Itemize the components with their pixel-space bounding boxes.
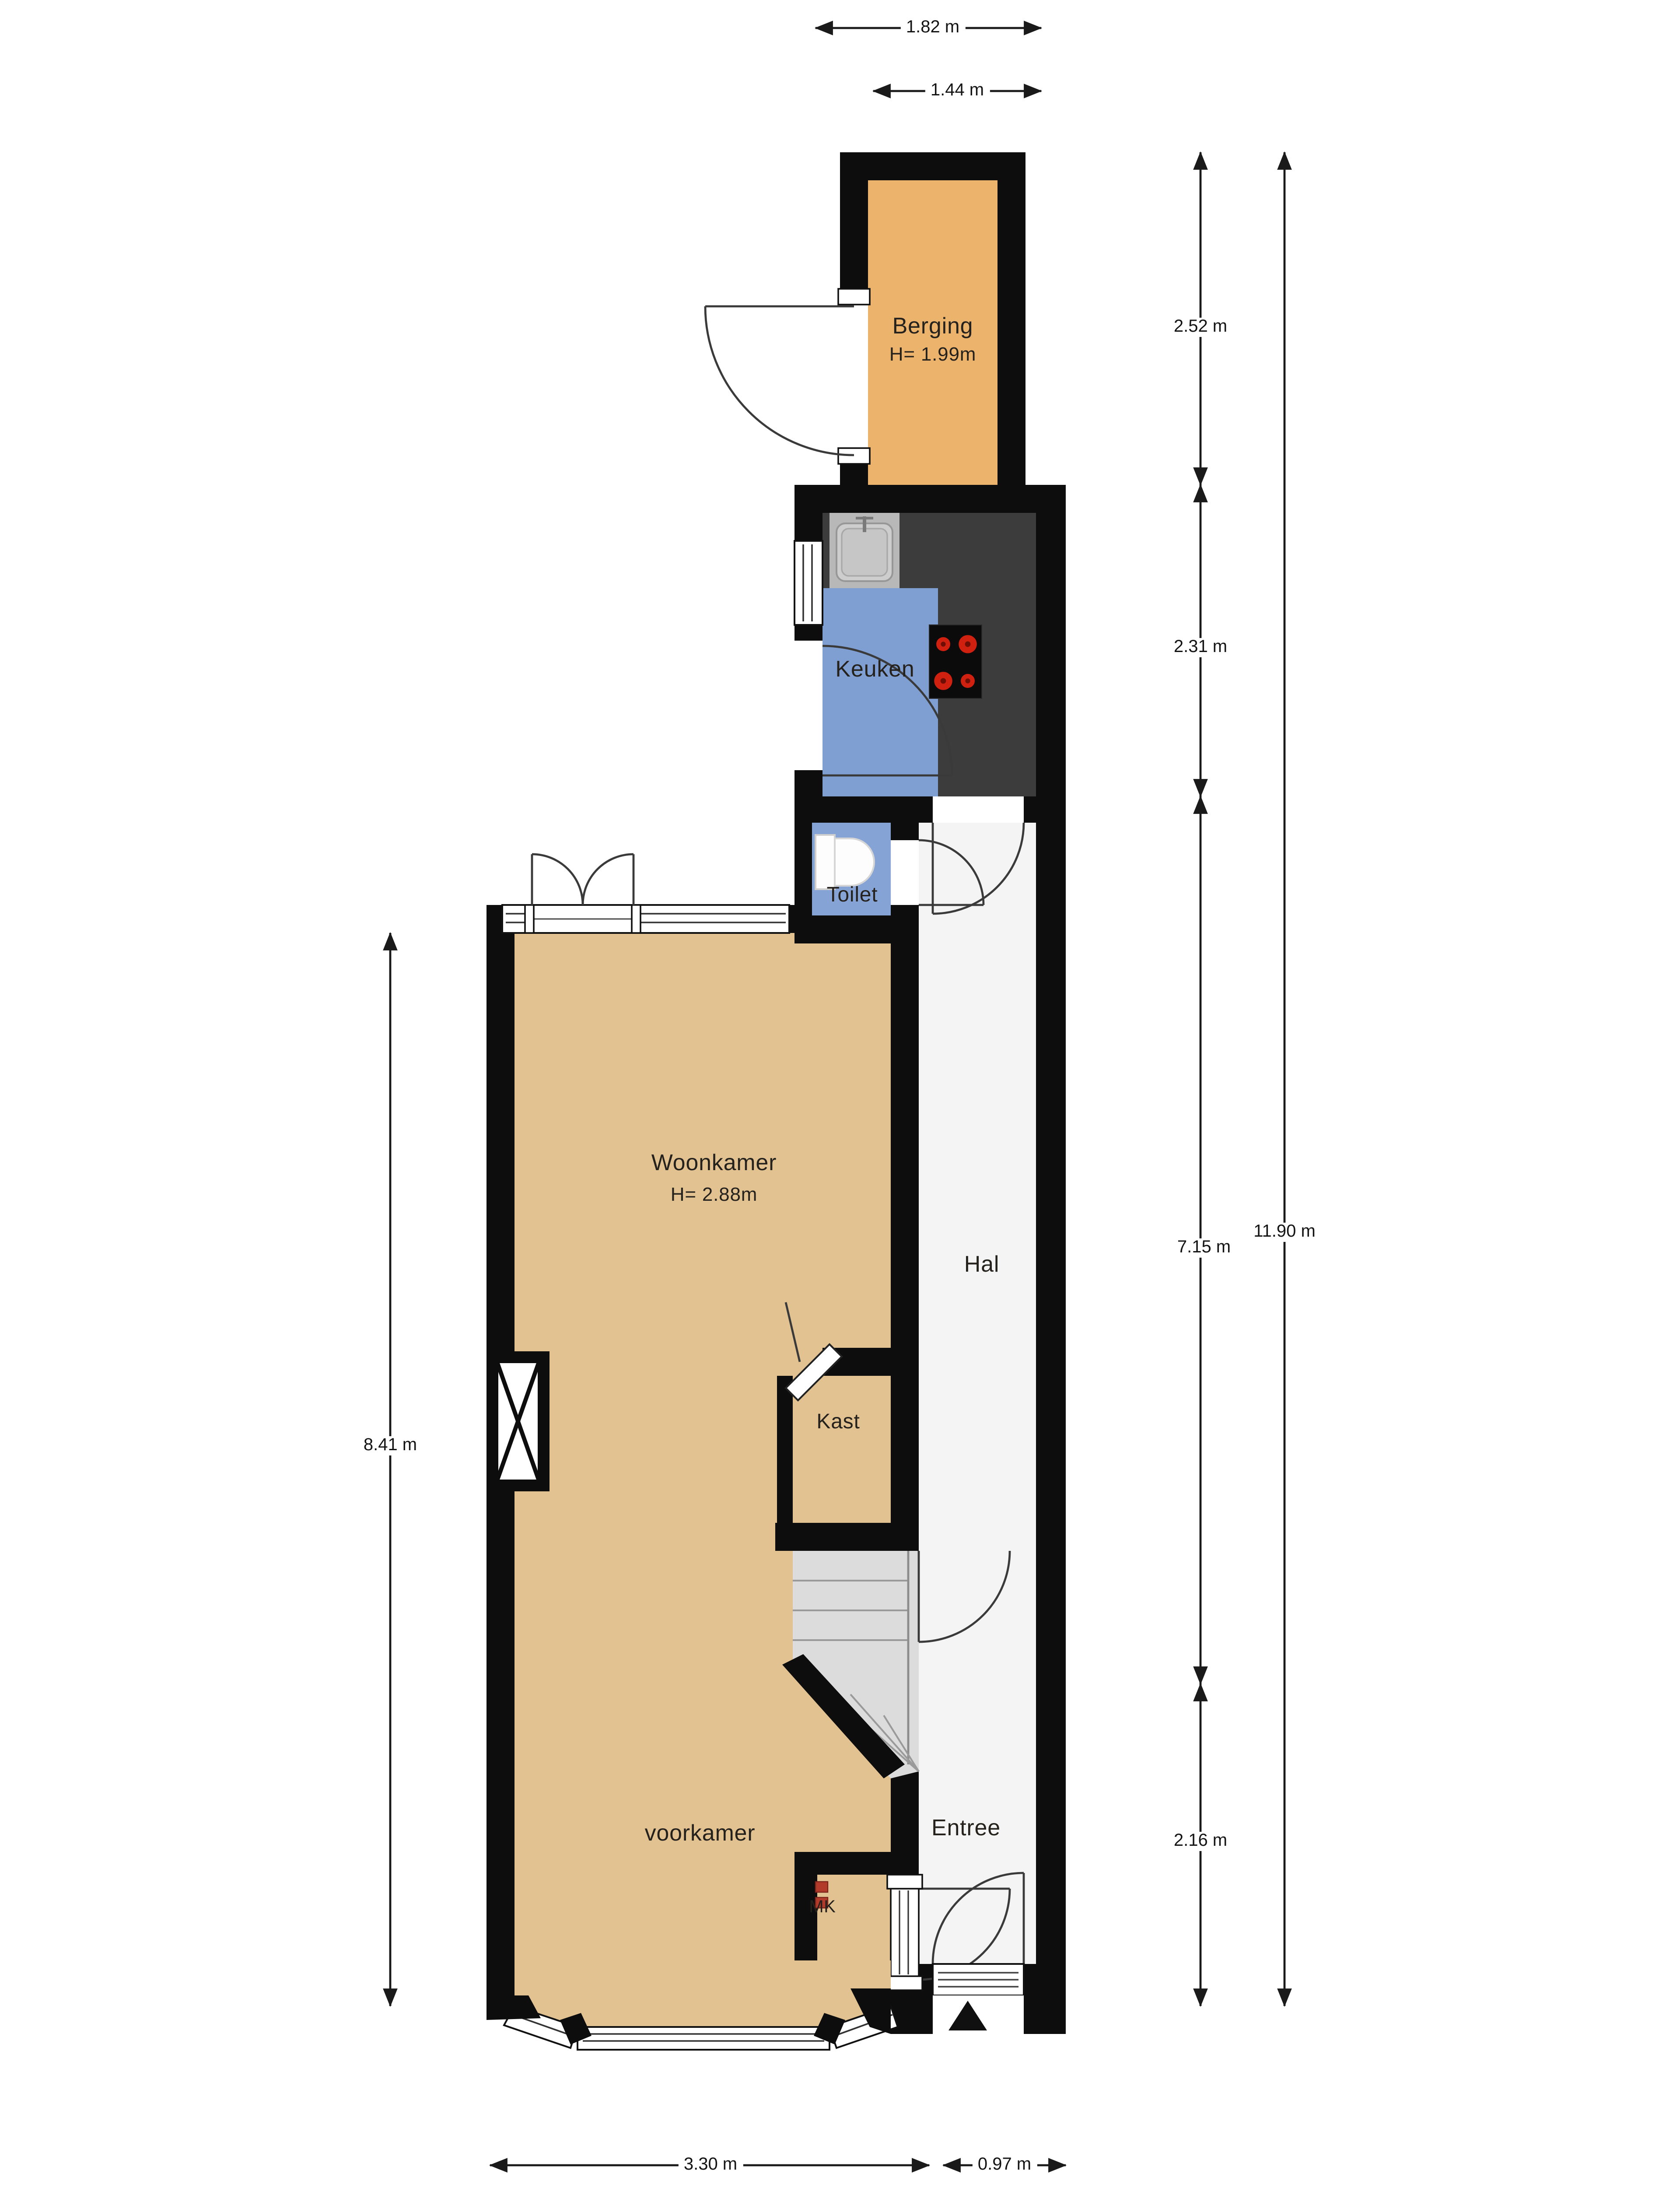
dim-right-keuken: 2.31 m <box>1169 638 1232 657</box>
berging-door-arc <box>705 306 854 455</box>
wall-flue-niche <box>514 1351 549 1491</box>
wall-berging-right <box>997 152 1025 485</box>
wall-hal-left-upper <box>891 943 919 1551</box>
wall-keuken-left-a <box>794 513 822 541</box>
room-keuken <box>822 513 1036 796</box>
wall-woonkamer-left <box>486 933 514 2016</box>
label-toilet: Toilet <box>827 882 878 907</box>
label-entree: Entree <box>931 1814 1001 1841</box>
dim-right-berging: 2.52 m <box>1169 318 1232 337</box>
wall-hal-left-mid <box>891 1771 919 1885</box>
kitchen-window <box>794 541 822 625</box>
room-hal <box>919 823 1036 1964</box>
french-doors-arcs <box>532 854 633 905</box>
wall-entree-bottom-right <box>1024 1964 1066 2034</box>
wall-berging-left-a <box>840 152 868 303</box>
entrance-arrow-icon <box>948 2001 987 2030</box>
room-meterkast <box>817 1875 891 1967</box>
dim-bottom-entree: 0.97 m <box>973 2156 1036 2175</box>
wall-keuken-left-b <box>794 625 822 641</box>
wall-keuken-bottom-b <box>1024 796 1036 823</box>
wall-entree-bottom-left <box>891 1964 933 2034</box>
floorplan-canvas: Berging H= 1.99m Keuken Toilet Woonkamer… <box>0 0 1680 2188</box>
wall-berging-left-b <box>840 452 868 485</box>
label-hal: Hal <box>964 1251 999 1277</box>
label-kast: Kast <box>816 1409 860 1434</box>
label-berging-height: H= 1.99m <box>889 345 976 366</box>
label-mk: MK <box>809 1898 836 1918</box>
label-woonkamer: Woonkamer <box>651 1149 777 1175</box>
dim-right-middle: 7.15 m <box>1172 1238 1236 1258</box>
wall-kast-bottom <box>775 1523 919 1551</box>
dim-bottom-voorkamer: 3.30 m <box>679 2156 742 2175</box>
label-voorkamer: voorkamer <box>645 1820 756 1846</box>
woonkamer-garden-window <box>502 905 789 933</box>
wall-kast-topright <box>822 1348 891 1376</box>
dim-left-woonkamer: 8.41 m <box>358 1436 422 1455</box>
wall-toilet-bottom <box>794 915 919 943</box>
front-door-threshold <box>933 1964 1024 2034</box>
dim-right-total: 11.90 m <box>1248 1223 1321 1242</box>
wall-right-outer <box>1036 485 1066 2034</box>
label-keuken: Keuken <box>835 656 914 682</box>
wall-mk-bottom <box>794 1967 891 2006</box>
wall-keuken-left-c <box>794 770 822 796</box>
dim-right-entree: 2.16 m <box>1169 1832 1232 1851</box>
wall-woonkamer-top-corner <box>486 905 502 933</box>
wall-keuken-top <box>794 485 1066 513</box>
label-berging: Berging <box>892 312 973 339</box>
label-woonkamer-height: H= 2.88m <box>671 1185 757 1206</box>
dim-top-outer: 1.82 m <box>901 18 965 38</box>
wall-woonkamer-top-stub <box>786 905 812 933</box>
berging-door-jambs <box>838 289 870 464</box>
dim-top-inner: 1.44 m <box>925 81 989 101</box>
wall-toilet-right-a <box>891 796 919 840</box>
